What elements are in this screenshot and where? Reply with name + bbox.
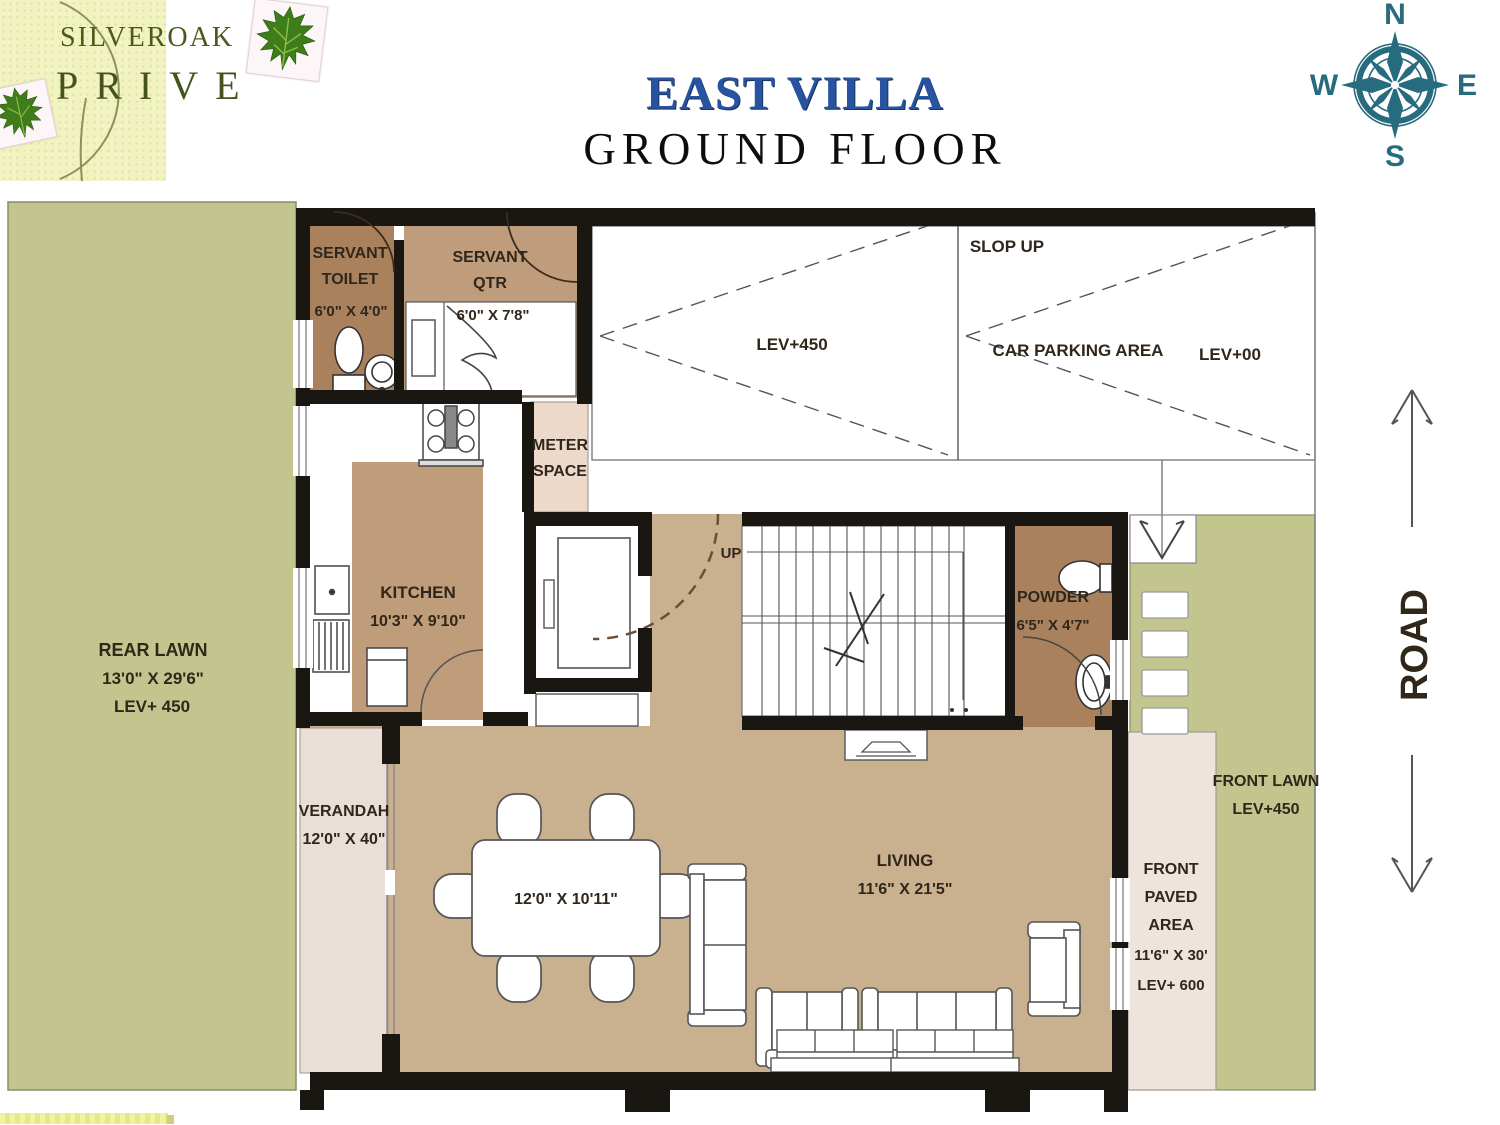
front-paved-area — [1128, 732, 1216, 1090]
front-paved-label: FRONT — [1143, 861, 1198, 878]
meter-space-label2: SPACE — [533, 463, 587, 480]
living-dim: 11'6" X 21'5" — [858, 881, 953, 898]
meter-space-label: METER — [532, 437, 588, 454]
verandah-floor — [300, 728, 388, 1073]
powder-dim: 6'5" X 4'7" — [1016, 617, 1089, 634]
stepping-stone — [1142, 631, 1188, 657]
servant-qtr-label: SERVANT — [453, 249, 528, 266]
north-wall — [296, 208, 1315, 226]
car-parking-label: CAR PARKING AREA — [993, 341, 1164, 360]
stairs-up-label: UP — [721, 545, 742, 562]
front-lawn-level: LEV+450 — [1232, 801, 1299, 818]
floor-plan-drawing: REAR LAWN 13'0" X 29'6" LEV+ 450 SERVANT… — [0, 0, 1500, 1125]
lift-shaft — [536, 526, 638, 726]
front-lawn-label: FRONT LAWN — [1213, 773, 1320, 790]
powder-label: POWDER — [1017, 589, 1089, 606]
south-wall — [310, 1072, 1128, 1090]
front-paved-label2: PAVED — [1145, 889, 1198, 906]
front-paved-level: LEV+ 600 — [1137, 977, 1204, 994]
slop-up-label: SLOP UP — [970, 237, 1044, 256]
road-label: ROAD — [1394, 589, 1436, 701]
dining-chair — [497, 794, 541, 846]
parking-lev-right: LEV+00 — [1199, 345, 1261, 364]
dining-chair — [497, 950, 541, 1002]
servant-qtr-dim: 6'0" X 7'8" — [456, 307, 529, 324]
stepping-stone — [1142, 670, 1188, 696]
living-label: LIVING — [877, 851, 934, 870]
rear-lawn-dim: 13'0" X 29'6" — [102, 669, 204, 688]
armchair — [1028, 922, 1080, 1016]
meter-space-floor — [530, 402, 588, 512]
sofa-two-seater — [688, 864, 746, 1026]
stepping-stone — [1142, 708, 1188, 734]
kitchen-dim: 10'3" X 9'10" — [370, 613, 466, 630]
floor-plan-page: SILVEROAK PRIVE EAST VILLA GROUND FLOOR — [0, 0, 1500, 1125]
servant-qtr-label2: QTR — [473, 275, 507, 292]
servant-toilet-dim: 6'0" X 4'0" — [314, 303, 387, 320]
parking-lev-left: LEV+450 — [756, 335, 827, 354]
refrigerator — [367, 648, 407, 706]
front-paved-dim: 11'6" X 30' — [1134, 947, 1207, 964]
dining-chair — [590, 950, 634, 1002]
dining-dim: 12'0" X 10'11" — [514, 891, 618, 908]
rear-lawn-level: LEV+ 450 — [114, 697, 190, 716]
kitchen-label: KITCHEN — [380, 583, 456, 602]
servant-toilet-label: SERVANT — [313, 245, 388, 262]
rear-lawn-label: REAR LAWN — [99, 640, 208, 660]
stepping-stone — [1142, 592, 1188, 618]
verandah-dim: 12'0" X 40" — [302, 831, 385, 848]
dining-chair — [590, 794, 634, 846]
servant-toilet-label2: TOILET — [322, 271, 379, 288]
car-parking-floor — [592, 226, 1315, 460]
front-paved-label3: AREA — [1148, 917, 1194, 934]
verandah-label: VERANDAH — [299, 803, 390, 820]
